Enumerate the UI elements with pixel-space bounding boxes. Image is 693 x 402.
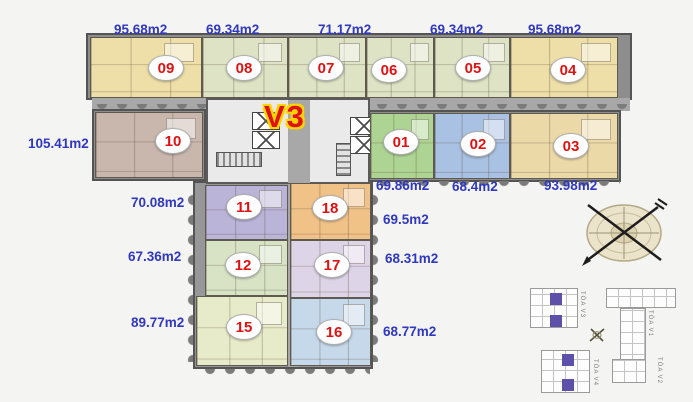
unit-area-label: 67.36m2: [128, 249, 181, 264]
building-title: V3: [264, 99, 306, 135]
site-building-2: [541, 350, 590, 393]
unit-number-badge: 03: [553, 133, 589, 159]
unit-area-label: 95.68m2: [528, 22, 581, 37]
unit-area-label: 68.77m2: [383, 324, 436, 339]
site-building-3-label: TÒA V1: [647, 310, 653, 337]
site-building-2-label: TÒA V4: [592, 359, 598, 386]
highlight-square: [562, 354, 574, 366]
unit-number-badge: 15: [226, 314, 262, 340]
unit-area-label: 70.08m2: [131, 195, 184, 210]
unit-number-badge: 16: [316, 319, 352, 345]
balcony-scallops-west: [184, 190, 193, 362]
unit-area-label: 68.31m2: [385, 251, 438, 266]
unit-area-label: 69.5m2: [383, 212, 429, 227]
highlight-square: [550, 315, 562, 327]
highlight-square: [562, 379, 574, 391]
site-building-1: [530, 288, 578, 328]
unit-area-label: 105.41m2: [28, 136, 89, 151]
balcony-scallops-south: [200, 369, 370, 378]
site-building-3: [620, 308, 646, 366]
compass-rose-icon: [578, 198, 670, 270]
unit-number-badge: 07: [308, 55, 344, 81]
floor-plan: V3 TÒA V3 TÒA V4: [0, 0, 693, 402]
unit-area-label: 69.34m2: [206, 22, 259, 37]
site-building-4-label: TÒA V2: [656, 357, 662, 384]
unit-number-badge: 11: [226, 194, 262, 220]
unit-number-badge: 05: [455, 55, 491, 81]
stairs-icon: [216, 152, 262, 167]
site-map: TÒA V3 TÒA V4 TÒA V1 TÒA V2: [528, 283, 693, 402]
unit-area-label: 69.86m2: [376, 178, 429, 193]
unit-number-badge: 01: [383, 129, 419, 155]
unit-area-label: 71.17m2: [318, 22, 371, 37]
unit-09: [90, 37, 202, 98]
site-building-1-label: TÒA V3: [579, 291, 585, 318]
site-building-3: [612, 359, 646, 383]
unit-number-badge: 09: [148, 55, 184, 81]
unit-number-badge: 12: [225, 252, 261, 278]
balcony-scallops-east: [373, 190, 382, 362]
stairs-icon: [336, 143, 351, 176]
unit-number-badge: 17: [314, 252, 350, 278]
unit-number-badge: 04: [550, 57, 586, 83]
unit-area-label: 89.77m2: [131, 315, 184, 330]
unit-number-badge: 02: [460, 131, 496, 157]
unit-number-badge: 18: [312, 195, 348, 221]
unit-area-label: 69.34m2: [430, 22, 483, 37]
unit-area-label: 93.98m2: [544, 178, 597, 193]
unit-number-badge: 06: [371, 57, 407, 83]
unit-number-badge: 10: [155, 128, 191, 154]
mini-compass-icon: [588, 327, 606, 343]
site-building-3: [606, 288, 676, 308]
unit-area-label: 68.4m2: [452, 179, 498, 194]
unit-number-badge: 08: [226, 55, 262, 81]
unit-area-label: 95.68m2: [114, 22, 167, 37]
highlight-square: [550, 293, 562, 305]
